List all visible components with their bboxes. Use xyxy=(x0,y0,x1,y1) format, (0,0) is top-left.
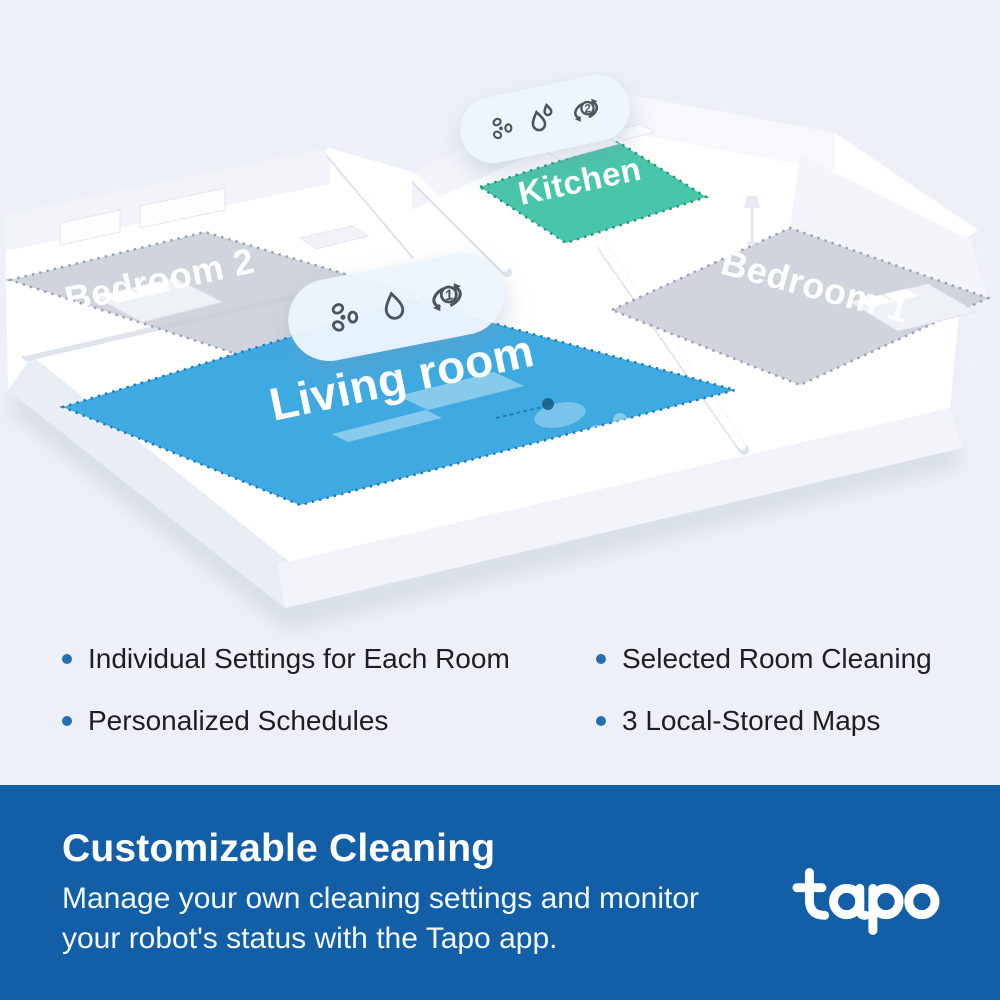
repeat-icon: 1 xyxy=(421,271,473,323)
droplet-icon xyxy=(372,285,417,330)
chair xyxy=(613,413,627,427)
feature-item: 3 Local-Stored Maps xyxy=(596,702,932,740)
fan-icon xyxy=(483,111,519,147)
feature-text: Selected Room Cleaning xyxy=(622,640,932,678)
fan-icon xyxy=(320,294,367,341)
bullet-dot xyxy=(62,716,72,726)
repeat-icon: 2 xyxy=(565,89,608,132)
bullet-dot xyxy=(62,654,72,664)
chair xyxy=(589,425,603,439)
feature-column-left: Individual Settings for Each Room Person… xyxy=(62,640,510,764)
feature-item: Individual Settings for Each Room xyxy=(62,640,510,678)
feature-text: Individual Settings for Each Room xyxy=(88,640,510,678)
feature-column-right: Selected Room Cleaning 3 Local-Stored Ma… xyxy=(596,640,932,764)
promo-image: Bedroom 2 Kitchen Bedroom xyxy=(0,0,1000,1000)
bullet-dot xyxy=(596,716,606,726)
banner-title: Customizable Cleaning xyxy=(62,827,495,871)
robot-vacuum xyxy=(542,398,554,410)
bullet-dot xyxy=(596,654,606,664)
feature-text: Personalized Schedules xyxy=(88,702,388,740)
feature-text: 3 Local-Stored Maps xyxy=(622,702,880,740)
feature-item: Personalized Schedules xyxy=(62,702,510,740)
tapo-logo xyxy=(790,867,942,936)
banner-description: Manage your own cleaning settings and mo… xyxy=(62,879,722,959)
banner: Customizable Cleaning Manage your own cl… xyxy=(0,785,1000,1000)
feature-item: Selected Room Cleaning xyxy=(596,640,932,678)
droplets-icon xyxy=(522,99,562,139)
